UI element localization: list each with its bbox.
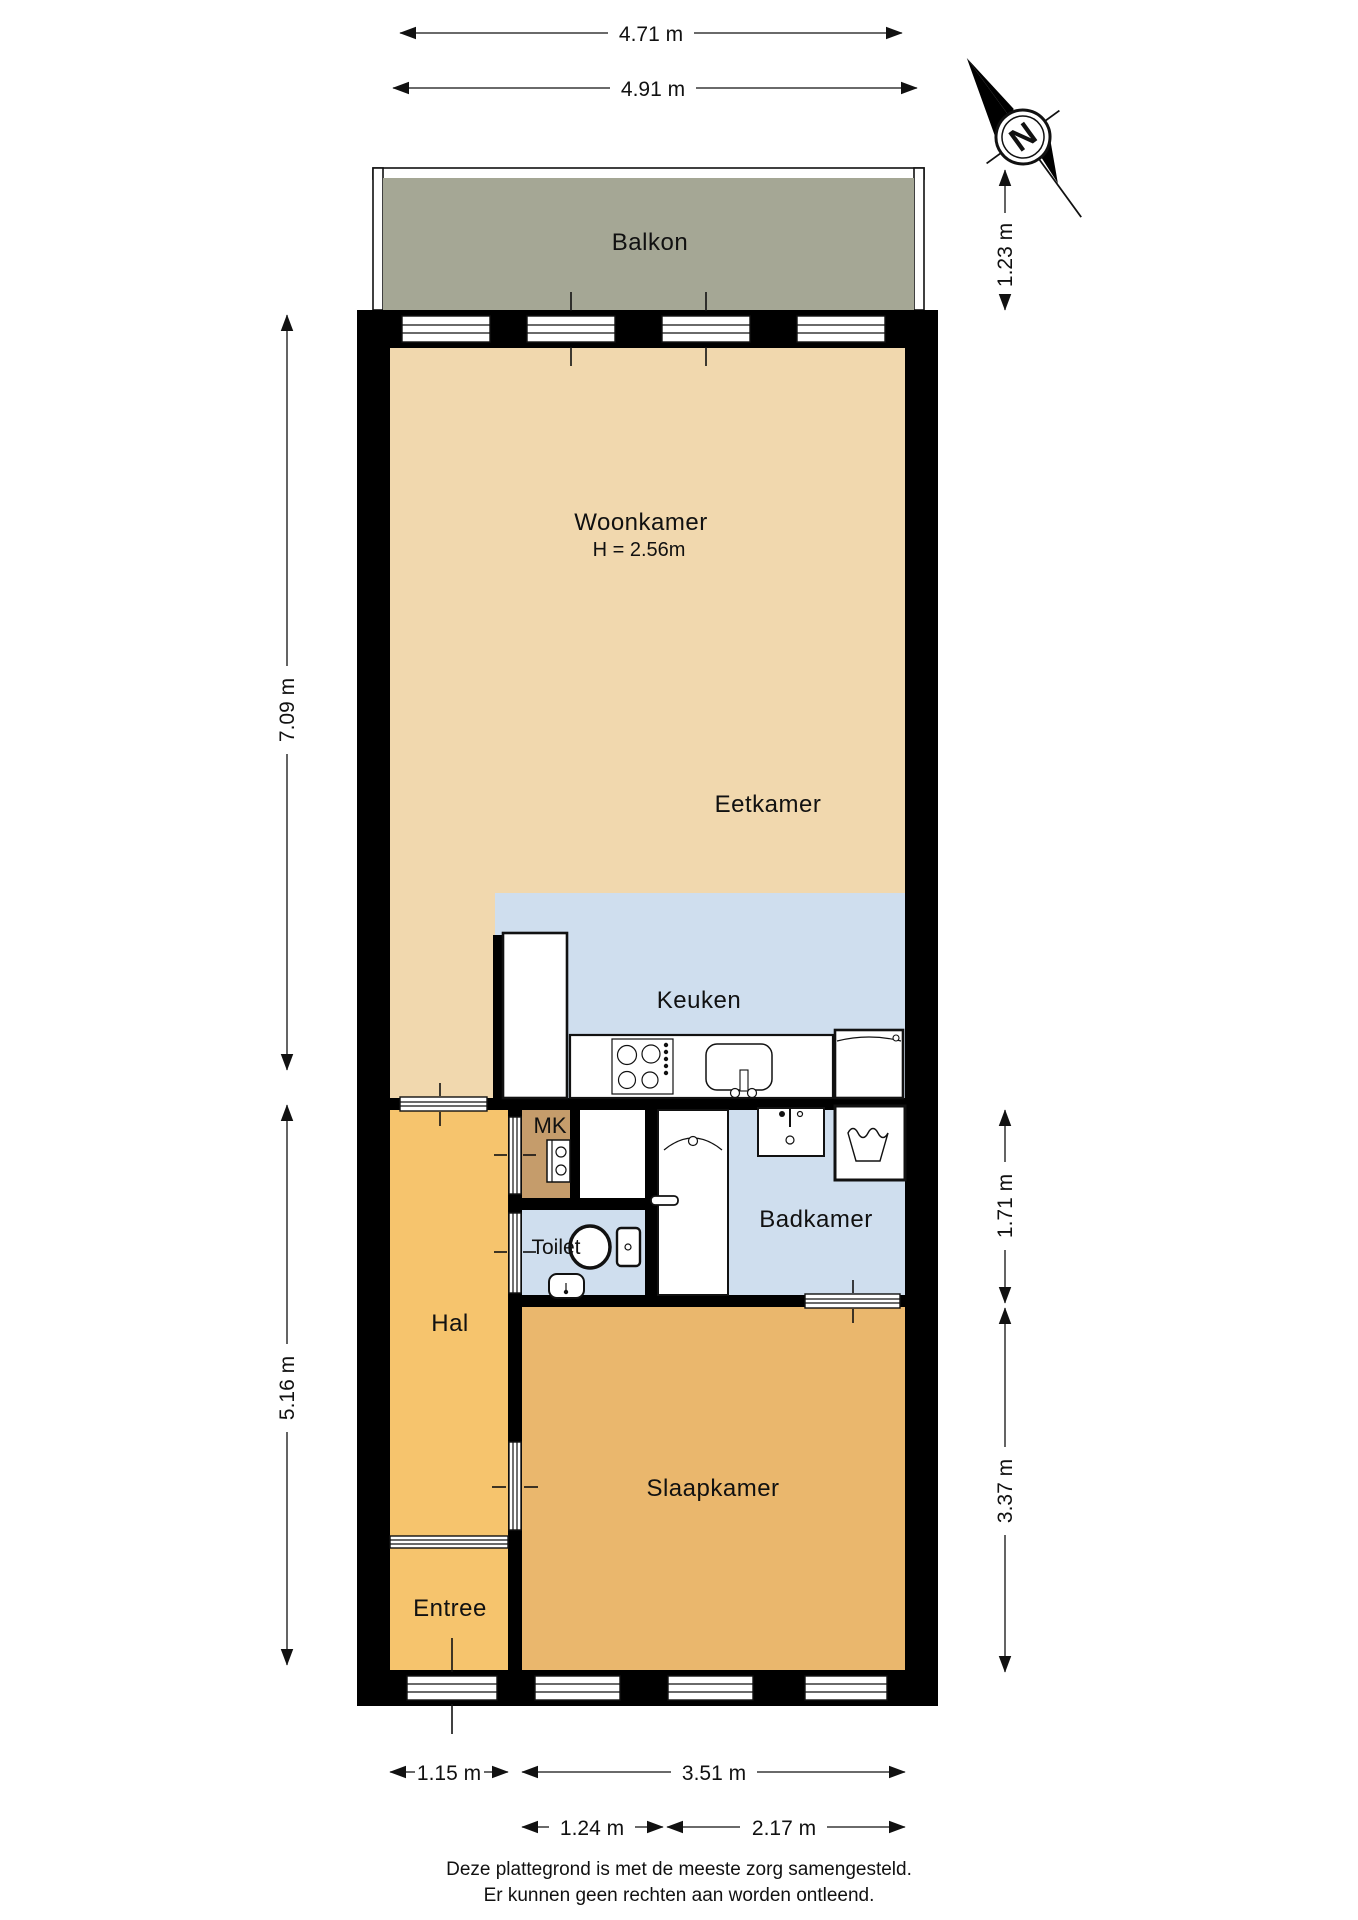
balcony-wall-top [373, 168, 924, 179]
svg-text:3.51 m: 3.51 m [682, 1762, 746, 1785]
mk-fixtures [547, 1140, 570, 1182]
room-label-eetkamer: Eetkamer [715, 791, 822, 818]
svg-text:1.24 m: 1.24 m [560, 1817, 624, 1840]
door-toilet [509, 1213, 521, 1293]
front-door [407, 1676, 497, 1700]
meter-cabinet-icon [547, 1140, 570, 1182]
wall-left [357, 310, 390, 1706]
kitchen-cabinet [503, 933, 567, 1098]
washing-machine-icon [835, 1106, 905, 1180]
toilet-sink-icon [549, 1274, 584, 1298]
bathroom-sink-icon [758, 1108, 824, 1156]
kitchen-wall-stub [493, 935, 503, 1098]
svg-text:1.15 m: 1.15 m [417, 1762, 481, 1785]
room-label-slaapkamer: Slaapkamer [646, 1475, 779, 1502]
svg-text:1.23 m: 1.23 m [994, 223, 1017, 287]
room-label-balkon: Balkon [612, 229, 688, 256]
fridge-icon [835, 1030, 903, 1098]
window-top-3 [662, 316, 750, 342]
window-top-2 [527, 316, 615, 342]
balcony-wall-left [373, 168, 383, 310]
shower-drain-icon [689, 1137, 698, 1146]
room-label-mk: MK [534, 1113, 567, 1138]
kitchen-counter [570, 1035, 833, 1098]
svg-text:4.91 m: 4.91 m [621, 78, 685, 101]
room-label-badkamer: Badkamer [759, 1206, 872, 1233]
wall-mk-toilet [508, 1198, 658, 1210]
window-bottom-1 [535, 1676, 620, 1700]
svg-text:2.17 m: 2.17 m [752, 1817, 816, 1840]
shower [651, 1110, 728, 1295]
wall-mk-closet [570, 1110, 580, 1198]
balcony: Balkon [373, 168, 924, 310]
wall-right [905, 310, 938, 1706]
floorplan: Balkon [0, 0, 1358, 1920]
door-mk [509, 1117, 521, 1194]
svg-text:7.09 m: 7.09 m [276, 678, 299, 742]
room-hal-entree-fill [390, 1110, 508, 1670]
window-bottom-3 [805, 1676, 887, 1700]
room-closet-fill [580, 1110, 645, 1198]
room-label-toilet: Toilet [531, 1236, 580, 1259]
footer-line-2: Er kunnen geen rechten aan worden ontlee… [484, 1885, 875, 1906]
balcony-wall-right [914, 168, 924, 310]
room-label-woonkamer: Woonkamer [574, 509, 707, 536]
door-slaapkamer [509, 1442, 521, 1530]
shower-handle-icon [651, 1196, 678, 1205]
room-label-hal: Hal [431, 1310, 469, 1337]
window-bottom-2 [668, 1676, 753, 1700]
svg-text:4.71 m: 4.71 m [619, 23, 683, 46]
partition-hal-entree [390, 1536, 508, 1548]
footer-line-1: Deze plattegrond is met de meeste zorg s… [446, 1859, 912, 1880]
svg-text:1.71 m: 1.71 m [994, 1174, 1017, 1238]
window-top-1 [402, 316, 490, 342]
window-top-4 [797, 316, 885, 342]
room-label-woonkamer-height: H = 2.56m [593, 539, 686, 561]
cooktop-icon [612, 1039, 673, 1094]
room-label-entree: Entree [413, 1595, 487, 1622]
door-living-hall [400, 1097, 487, 1111]
svg-text:3.37 m: 3.37 m [994, 1459, 1017, 1523]
room-label-keuken: Keuken [657, 987, 741, 1014]
door-badkamer [805, 1294, 900, 1308]
kitchen-sink-icon [706, 1044, 772, 1098]
svg-text:5.16 m: 5.16 m [276, 1356, 299, 1420]
